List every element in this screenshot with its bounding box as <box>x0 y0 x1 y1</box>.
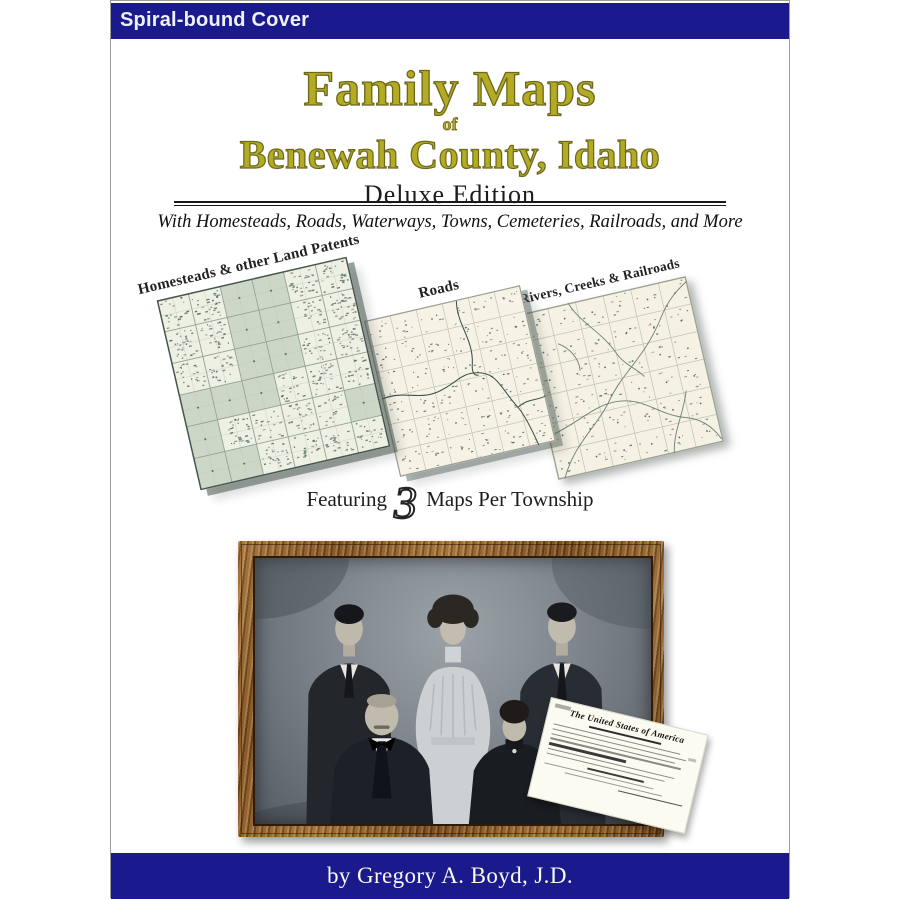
title-line1: Family Maps <box>111 63 789 113</box>
book-cover: Spiral-bound Cover Family Maps of Benewa… <box>110 0 790 898</box>
map-panel-rivers: Rivers, Creeks & Railroads <box>520 276 724 480</box>
binding-bar: Spiral-bound Cover <box>111 3 789 39</box>
featuring-suffix: Maps Per Township <box>426 487 593 511</box>
subtitle-text: With Homesteads, Roads, Waterways, Towns… <box>111 212 789 233</box>
featuring-line: Featuring3 Maps Per Township <box>111 485 789 522</box>
featuring-number: 3 <box>394 485 417 522</box>
featuring-prefix: Featuring <box>306 487 386 511</box>
byline-bar: by Gregory A. Boyd, J.D. <box>111 853 789 899</box>
homesteads-map-image <box>157 257 391 491</box>
book-cover-page: Spiral-bound Cover Family Maps of Benewa… <box>0 0 900 900</box>
title-line2: Benewah County, Idaho <box>111 135 789 175</box>
binding-label: Spiral-bound Cover <box>120 9 309 31</box>
book-title: Family Maps of Benewah County, Idaho Del… <box>111 63 789 208</box>
map-panel-homesteads: Homesteads & other Land Patents <box>157 257 391 491</box>
rivers-map-image <box>520 276 724 480</box>
title-connector: of <box>111 115 789 133</box>
byline-text: by Gregory A. Boyd, J.D. <box>327 863 573 888</box>
divider-rule <box>174 201 726 206</box>
